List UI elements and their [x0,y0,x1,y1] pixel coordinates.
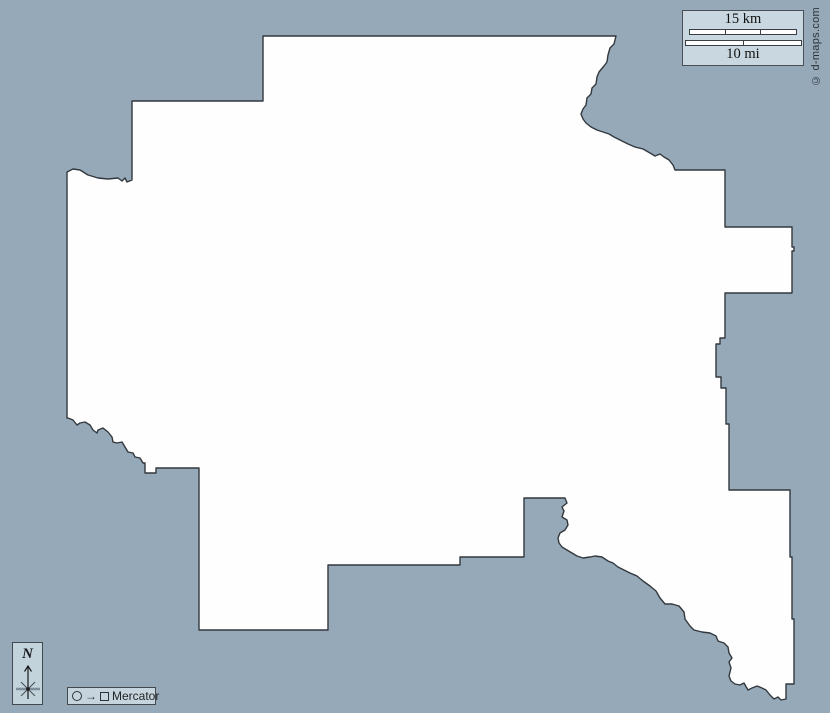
compass-rose: N [12,642,43,705]
map-stage: 15 km 10 mi © d-maps.com N → Mercator [0,0,830,713]
arrow-right-icon: → [85,690,97,702]
scale-km-bar [689,29,797,35]
scale-mi-segment [744,41,801,45]
copyright-watermark: © d-maps.com [810,7,822,86]
scale-mi-label: 10 mi [726,46,759,62]
compass-north-label: N [22,645,33,663]
circle-icon [72,691,82,701]
north-arrow-icon [14,663,42,703]
square-icon [100,692,109,701]
scale-km-label: 15 km [725,11,762,27]
scale-mi-segment [686,41,744,45]
scale-bar-panel: 15 km 10 mi [682,10,804,66]
projection-label: Mercator [112,689,159,703]
county-outline [67,36,794,700]
projection-panel: → Mercator [67,687,156,705]
scale-km-segment [761,30,796,34]
scale-km-segment [690,30,726,34]
scale-km-segment [726,30,762,34]
map-svg [0,0,830,713]
